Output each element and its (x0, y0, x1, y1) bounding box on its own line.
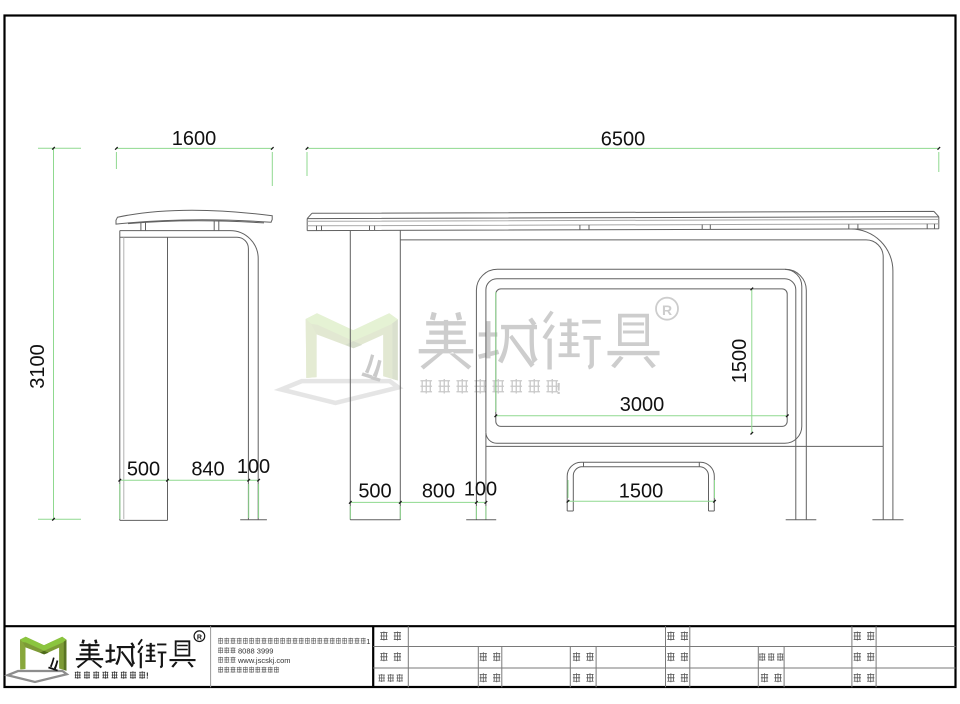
svg-text:1: 1 (366, 637, 370, 646)
svg-text:R: R (662, 302, 672, 318)
svg-text:500: 500 (358, 481, 391, 503)
svg-text:1600: 1600 (172, 128, 217, 150)
svg-text:!: ! (556, 381, 561, 398)
svg-text:3100: 3100 (27, 344, 49, 389)
svg-text:1500: 1500 (729, 339, 751, 384)
svg-text:!: ! (146, 672, 149, 681)
svg-text:100: 100 (464, 479, 497, 501)
svg-text:3000: 3000 (620, 394, 665, 416)
svg-text:1500: 1500 (619, 480, 664, 502)
svg-text:R: R (197, 635, 202, 642)
svg-text:500: 500 (127, 459, 160, 481)
svg-text:100: 100 (237, 456, 270, 478)
svg-text:6500: 6500 (601, 129, 646, 151)
svg-text:8088 3999: 8088 3999 (238, 647, 273, 656)
svg-text:www.jscskj.com: www.jscskj.com (237, 656, 291, 665)
svg-text:840: 840 (191, 459, 224, 481)
svg-text:800: 800 (422, 481, 455, 503)
